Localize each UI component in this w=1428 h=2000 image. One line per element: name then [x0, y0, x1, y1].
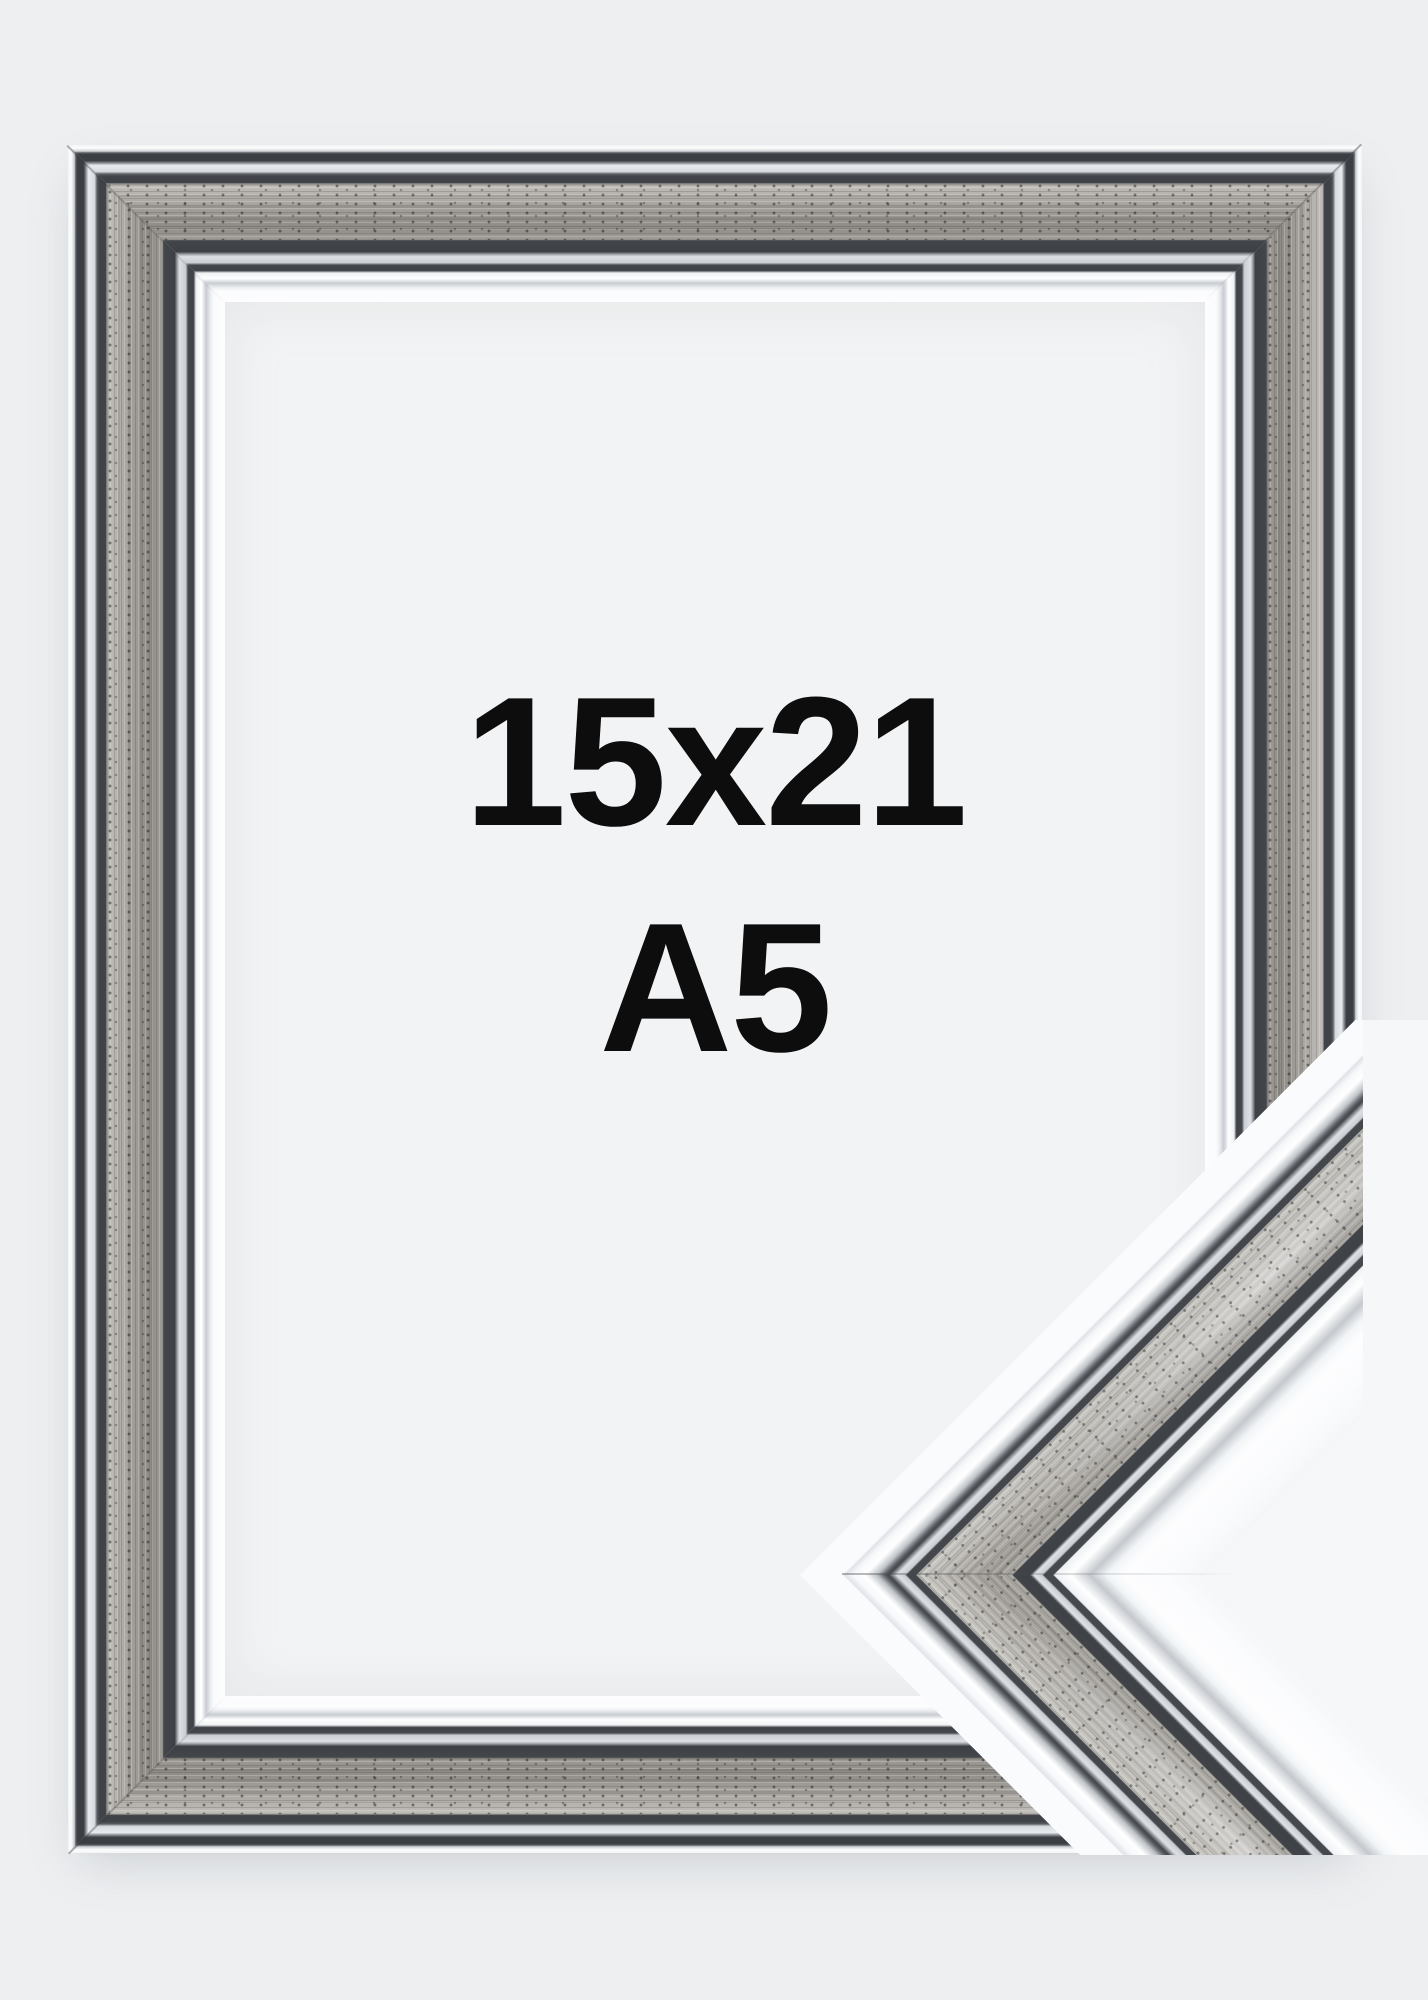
corner-sample-arm-upper [800, 1020, 1363, 1777]
corner-sample-texture-upper [859, 1020, 1363, 1681]
corner-sample [760, 1020, 1428, 1855]
frame-texture-top [68, 184, 1362, 240]
size-label-line1: 15x21 [68, 648, 1362, 874]
corner-sample-clip [760, 1020, 1363, 1855]
corner-sample-mitre-seam [842, 1573, 1242, 1575]
frame-bar-top [68, 145, 1362, 302]
product-photo-canvas: 15x21 A5 [0, 0, 1428, 2000]
